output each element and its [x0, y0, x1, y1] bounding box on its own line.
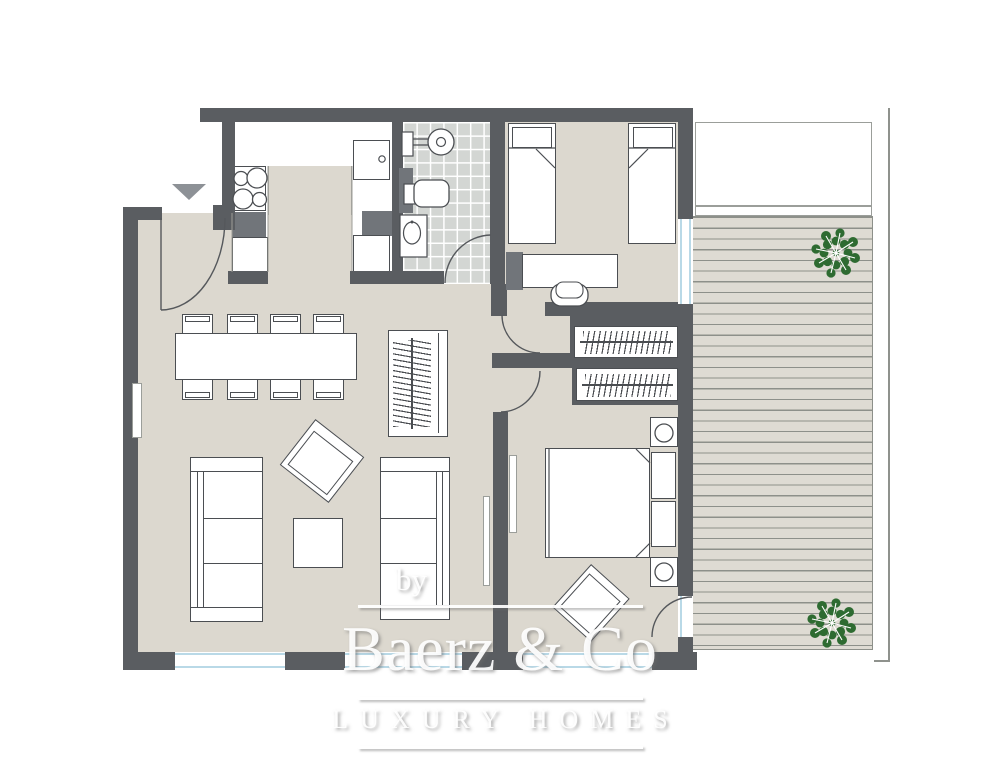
radiator-master	[509, 455, 517, 533]
wall-kitchen-bath	[392, 122, 403, 272]
kitchen-corridor-floor	[268, 160, 352, 215]
wardrobe-2-hangers	[585, 374, 671, 397]
dining-chair	[270, 314, 301, 335]
wall-hall-bar	[492, 353, 580, 368]
window-south-1-glass2	[175, 666, 285, 668]
nightstand-top	[650, 417, 678, 447]
wall-east	[678, 108, 693, 670]
watermark-rule-middle	[358, 697, 643, 700]
bathroom-tile-floor	[403, 122, 490, 284]
dining-chair	[227, 314, 258, 335]
wall-entry-stub	[123, 207, 162, 220]
coffee-table	[293, 518, 343, 568]
radiator-living	[483, 496, 490, 586]
watermark-brand-name: Baerz & Co	[310, 612, 690, 686]
desk-side-unit	[506, 252, 523, 290]
wardrobe-2-rail	[582, 384, 673, 386]
window-east-bedroom2-glass	[680, 219, 682, 304]
oven-appliance	[232, 212, 266, 237]
wall-hall-stub	[491, 284, 507, 316]
wall-south-1	[123, 652, 175, 670]
dining-chair	[182, 314, 213, 335]
dining-chair	[313, 314, 344, 335]
wall-bath-south	[350, 271, 444, 284]
bed-single-1-pillow	[512, 127, 552, 148]
wardrobe-living-rail	[411, 338, 413, 429]
entrance-arrow-icon	[172, 184, 206, 200]
wall-west	[123, 207, 138, 670]
wall-kitchen-west	[222, 122, 235, 213]
kitchen-sink-counter	[353, 140, 390, 180]
watermark-tagline: LUXURY HOMES	[310, 705, 702, 735]
wardrobe-living-edge	[438, 333, 439, 433]
wardrobe-1-rail	[580, 341, 673, 343]
floor-plan: by Baerz & Co LUXURY HOMES	[0, 0, 1000, 781]
terrace-step	[695, 206, 872, 216]
dining-table	[175, 333, 357, 380]
stove	[232, 166, 266, 211]
terrace-upper-area	[695, 122, 872, 206]
bed-single-2-pillow	[633, 127, 673, 148]
wardrobe-living	[388, 330, 448, 437]
dining-chair	[182, 379, 213, 400]
sofa-left	[190, 457, 263, 622]
kitchen-cabinet-right	[353, 235, 390, 272]
wall-kitchen-west-block	[213, 205, 235, 230]
wardrobe-1-hangers	[583, 331, 671, 354]
bed-double-pillow-2	[651, 501, 676, 547]
bed-double-pillow-1	[651, 452, 676, 499]
window-west-niche	[132, 383, 142, 438]
window-south-1-glass	[175, 653, 285, 655]
wardrobe-2	[576, 368, 678, 401]
plot-boundary-line-bottom	[874, 660, 890, 662]
dining-chair	[313, 379, 344, 400]
dishwasher-appliance	[362, 211, 394, 236]
terrace-deck	[692, 216, 873, 650]
nightstand-bottom	[650, 557, 678, 587]
plot-boundary-line-right	[888, 108, 890, 662]
bed-double	[545, 448, 650, 558]
kitchen-cabinet-left	[232, 237, 268, 272]
watermark-rule-bottom	[358, 746, 643, 749]
wall-kitchen-cap	[228, 271, 268, 284]
wardrobe-1	[574, 326, 678, 358]
wall-bedroom2-south	[545, 302, 693, 316]
watermark-by: by	[396, 562, 427, 598]
wall-bath-bedroom2	[490, 122, 505, 284]
window-east-bedroom2-glass2	[689, 219, 691, 304]
wall-top	[200, 108, 693, 122]
desk	[522, 254, 618, 288]
dining-chair	[270, 379, 301, 400]
dining-chair	[227, 379, 258, 400]
watermark-rule-top	[358, 605, 643, 608]
